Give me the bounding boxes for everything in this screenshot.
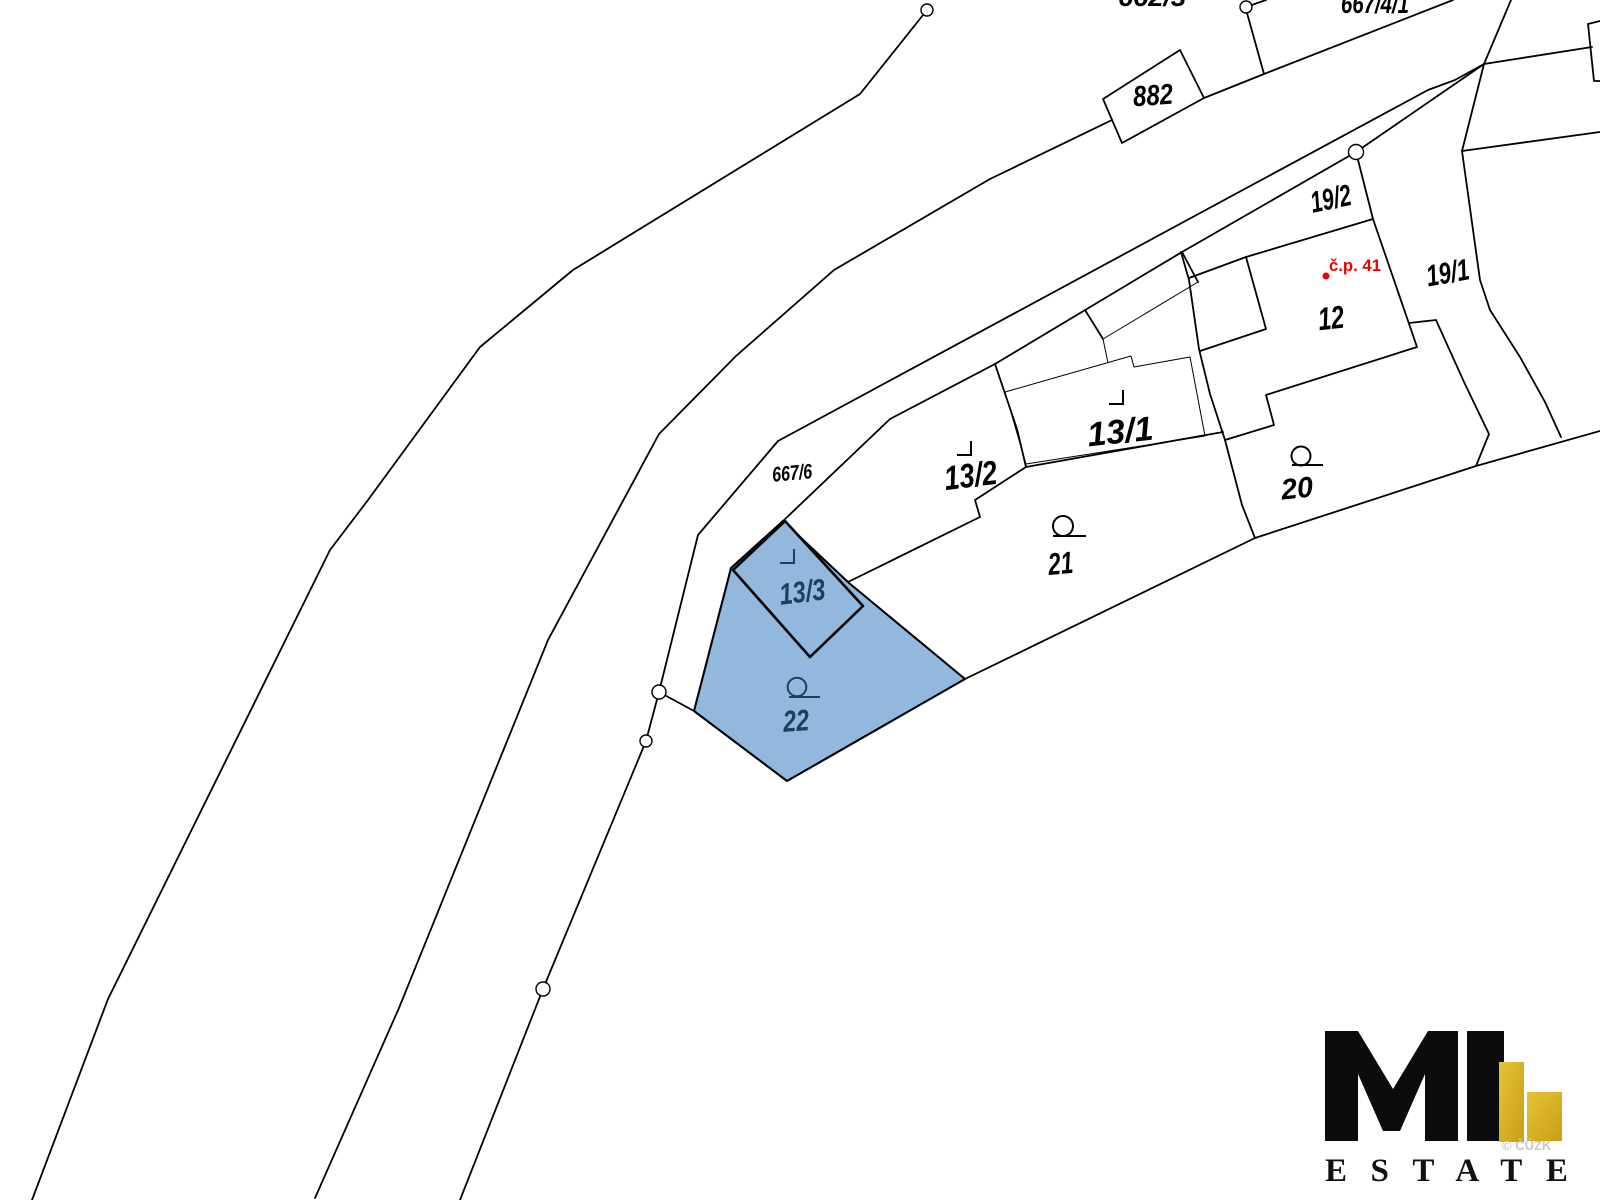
svg-text:20: 20 xyxy=(1279,471,1315,506)
svg-text:22: 22 xyxy=(781,704,810,739)
svg-text:č.p. 41: č.p. 41 xyxy=(1329,256,1381,275)
svg-text:667/4/1: 667/4/1 xyxy=(1341,0,1409,19)
svg-text:13/1: 13/1 xyxy=(1085,410,1155,455)
svg-text:© ČÚZK: © ČÚZK xyxy=(1502,1138,1552,1153)
svg-text:ESTATE: ESTATE xyxy=(1325,1153,1591,1189)
svg-text:21: 21 xyxy=(1046,545,1075,582)
svg-text:13/2: 13/2 xyxy=(942,454,999,498)
svg-text:13/3: 13/3 xyxy=(777,573,827,611)
svg-text:12: 12 xyxy=(1316,299,1346,338)
svg-text:667/6: 667/6 xyxy=(771,460,813,486)
svg-text:662/3: 662/3 xyxy=(1118,0,1187,12)
svg-text:882: 882 xyxy=(1132,79,1174,114)
